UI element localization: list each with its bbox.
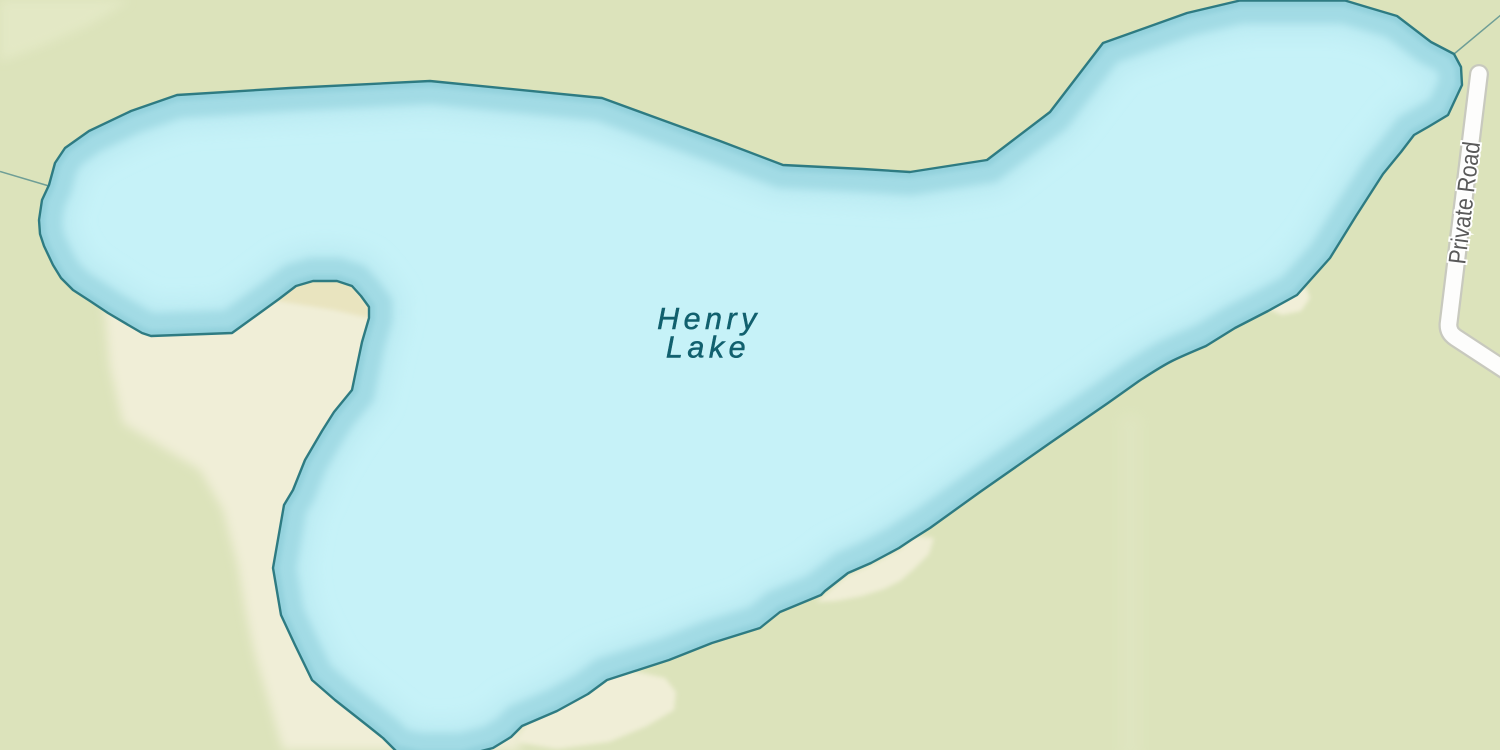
- svg-text:Lake: Lake: [666, 331, 750, 365]
